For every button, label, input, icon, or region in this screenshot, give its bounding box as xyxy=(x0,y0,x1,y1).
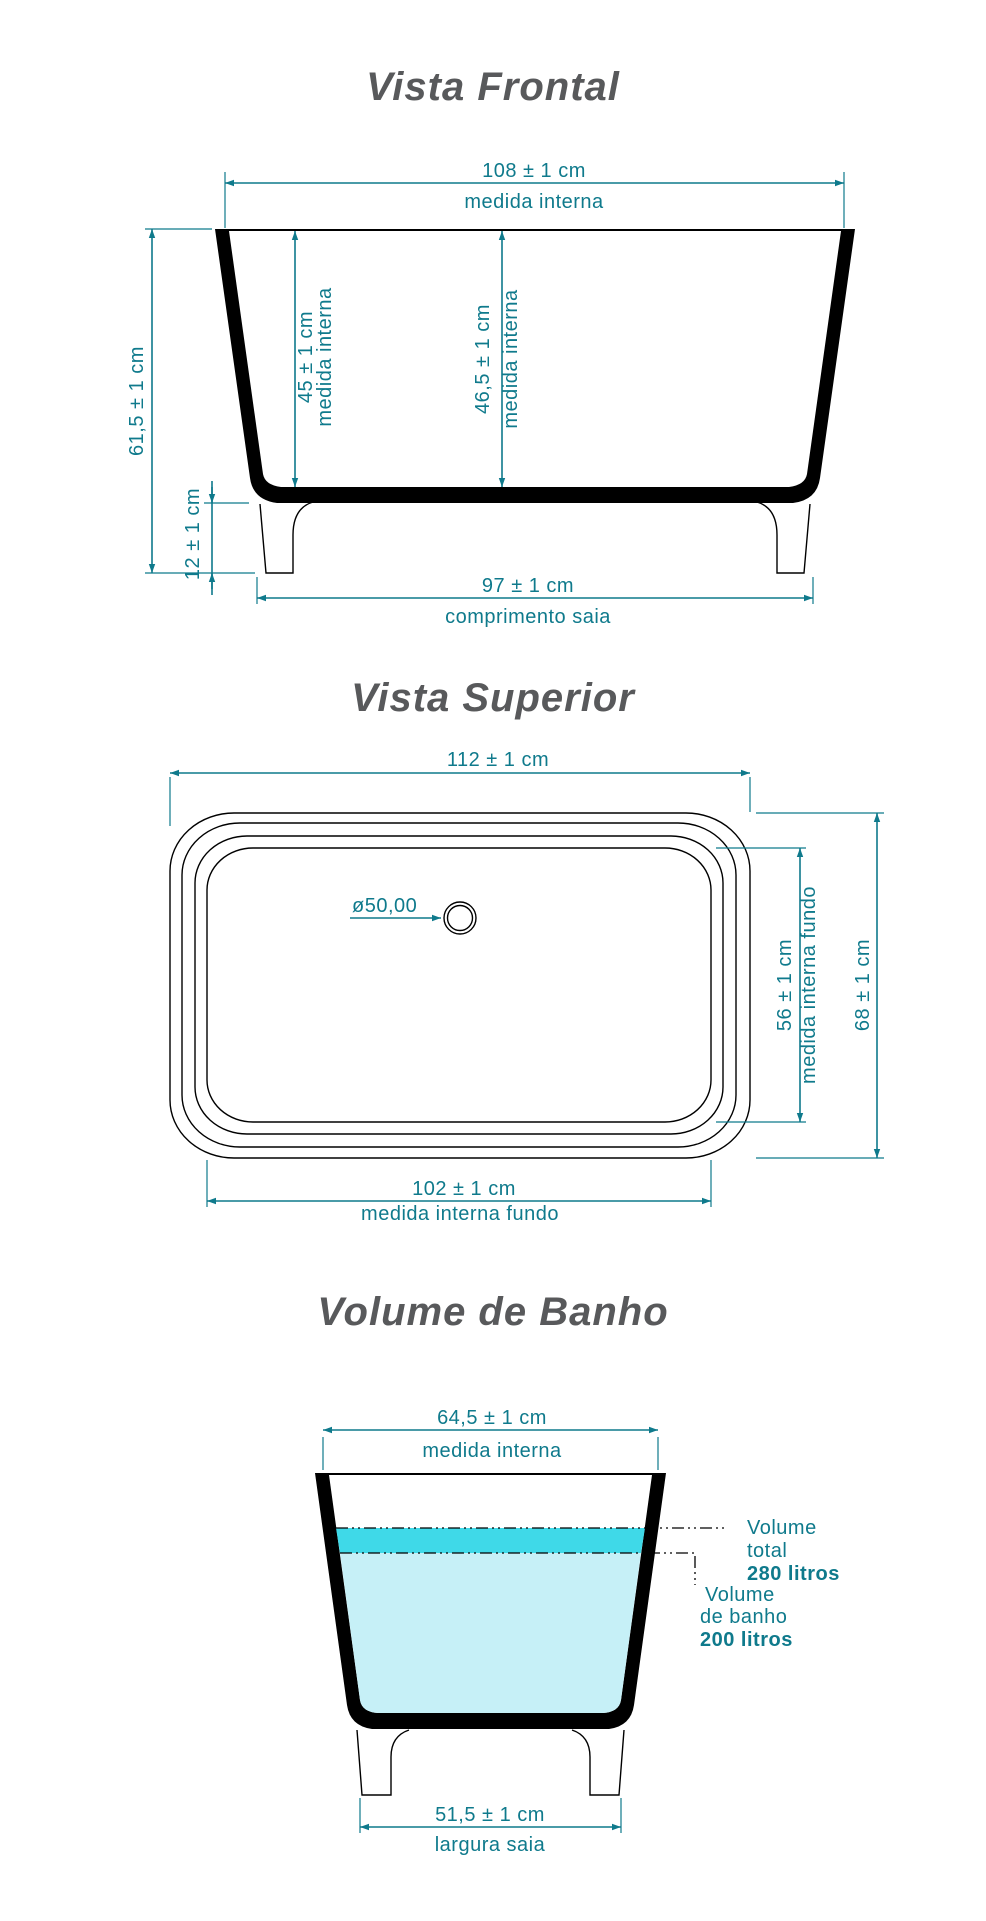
top-bottom-contour xyxy=(207,848,711,1122)
drain-inner-circle xyxy=(448,906,473,931)
volume-dim-51-value: 51,5 ± 1 cm xyxy=(435,1804,545,1826)
top-view-title: Vista Superior xyxy=(351,676,636,720)
front-view-title: Vista Frontal xyxy=(366,65,620,109)
front-dim-61-value: 61,5 ± 1 cm xyxy=(126,346,148,456)
top-opening-contour xyxy=(195,836,723,1134)
front-dim-108-label: medida interna xyxy=(464,191,604,213)
water-total-band xyxy=(336,1528,645,1553)
volume-right-leg xyxy=(572,1730,624,1795)
front-right-leg xyxy=(757,502,810,573)
bath-volume-title: Volume de Banho xyxy=(317,1290,668,1334)
drain-outer-circle xyxy=(444,902,476,934)
volume-bath-label-line1: Volume xyxy=(705,1584,775,1606)
front-dim-45-label: medida interna xyxy=(314,287,336,427)
volume-dim-64-value: 64,5 ± 1 cm xyxy=(437,1407,547,1429)
drawing-sheet: Vista Frontal 108 ± 1 cm medida interna … xyxy=(0,0,986,1921)
volume-dim-51-label: largura saia xyxy=(435,1834,546,1856)
bath-volume-view: Volume de Banho 64,5 ± 1 cm medida inter… xyxy=(315,1290,840,1856)
top-rim-inner-contour xyxy=(182,823,736,1147)
top-dim-56-label: medida interna fundo xyxy=(798,886,820,1084)
top-dim-102-value: 102 ± 1 cm xyxy=(412,1178,516,1200)
top-outer-rim-contour xyxy=(170,813,750,1158)
front-dim-46-label: medida interna xyxy=(500,289,522,429)
volume-total-value: 280 litros xyxy=(747,1563,840,1585)
volume-dim-64-label: medida interna xyxy=(422,1440,562,1462)
volume-left-leg xyxy=(357,1730,409,1795)
volume-total-label-line1: Volume xyxy=(747,1517,817,1539)
front-dim-12-value: 12 ± 1 cm xyxy=(182,488,204,580)
top-dim-112-value: 112 ± 1 cm xyxy=(447,749,549,771)
volume-bath-value: 200 litros xyxy=(700,1629,793,1651)
top-dim-68-value: 68 ± 1 cm xyxy=(852,939,874,1031)
front-dim-97-value: 97 ± 1 cm xyxy=(482,575,574,597)
front-dim-108-value: 108 ± 1 cm xyxy=(482,160,586,182)
volume-bath-label-line2: de banho xyxy=(700,1606,787,1628)
front-left-leg xyxy=(260,502,313,573)
volume-total-label-line2: total xyxy=(747,1540,787,1562)
top-dim-102-label: medida interna fundo xyxy=(361,1203,559,1225)
top-dim-56-value: 56 ± 1 cm xyxy=(774,939,796,1031)
front-dim-46-value: 46,5 ± 1 cm xyxy=(472,304,494,414)
drain-diameter-value: ø50,00 xyxy=(352,895,417,917)
front-dim-97-label: comprimento saia xyxy=(445,606,611,628)
top-view: Vista Superior ø50,00 112 ± 1 cm 56 ± 1 … xyxy=(170,676,884,1225)
front-view: Vista Frontal 108 ± 1 cm medida interna … xyxy=(126,65,855,628)
water-bath-fill xyxy=(340,1553,641,1713)
